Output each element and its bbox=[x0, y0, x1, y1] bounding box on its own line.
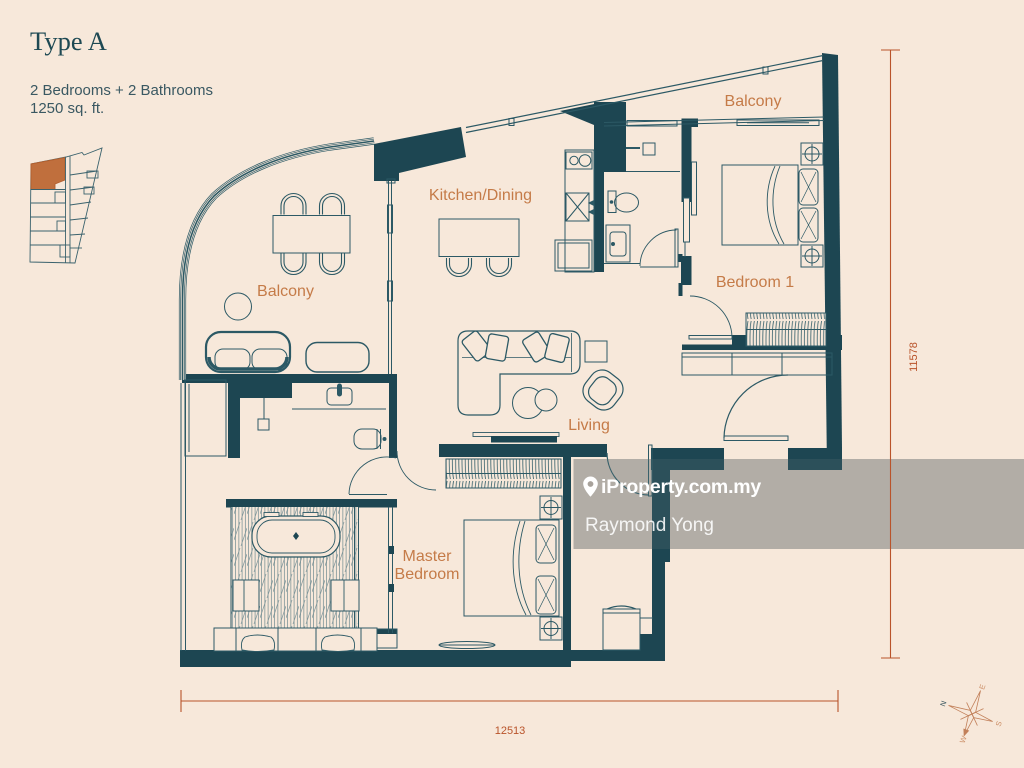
svg-text:Type A: Type A bbox=[30, 26, 107, 56]
svg-text:12513: 12513 bbox=[495, 725, 526, 737]
svg-text:Living: Living bbox=[568, 417, 610, 434]
svg-text:Balcony: Balcony bbox=[725, 93, 782, 110]
svg-text:Balcony: Balcony bbox=[257, 283, 314, 300]
svg-text:iProperty.com.my: iProperty.com.my bbox=[601, 476, 761, 498]
svg-text:Bedroom 1: Bedroom 1 bbox=[716, 274, 794, 291]
svg-text:1250 sq. ft.: 1250 sq. ft. bbox=[30, 100, 104, 117]
svg-text:Bedroom: Bedroom bbox=[395, 566, 460, 583]
svg-text:Raymond Yong: Raymond Yong bbox=[585, 515, 714, 536]
svg-text:Kitchen/Dining: Kitchen/Dining bbox=[429, 187, 532, 204]
svg-text:Master: Master bbox=[403, 548, 453, 565]
svg-text:2 Bedrooms + 2 Bathrooms: 2 Bedrooms + 2 Bathrooms bbox=[30, 82, 213, 99]
svg-text:11578: 11578 bbox=[908, 342, 920, 372]
